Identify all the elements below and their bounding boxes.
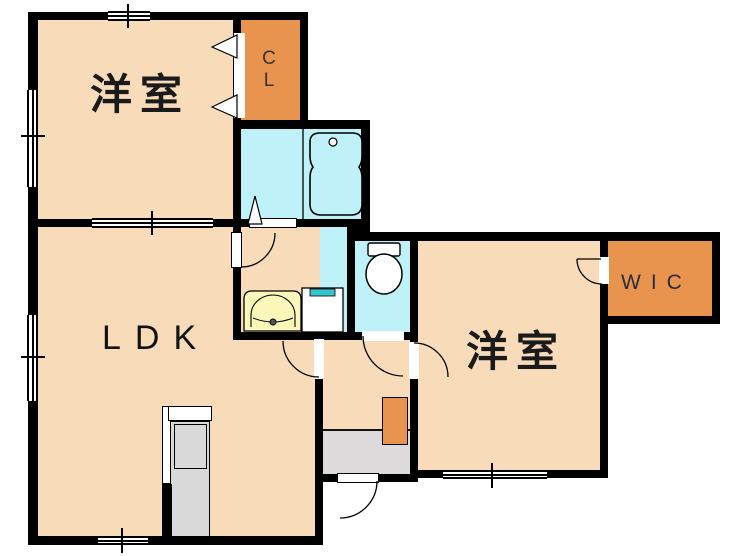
wall-top	[28, 12, 308, 20]
shoe-cabinet-icon	[382, 397, 408, 445]
label-walk-in-closet: WIC	[621, 272, 692, 293]
room-bedroom-top-left	[30, 14, 238, 224]
window-tick	[21, 356, 45, 358]
wall-wic-bottom	[600, 316, 720, 324]
floorplan-canvas: 洋室 CL LDK 洋室 WIC	[0, 0, 747, 556]
window-tick	[21, 135, 45, 137]
wall-wic-right	[712, 233, 720, 324]
wall-bottom-ldk	[28, 536, 323, 545]
door-gap-wic	[599, 257, 609, 284]
wall-bathroom-top	[233, 120, 370, 129]
wall-closet-right	[300, 12, 308, 129]
label-bedroom-right: 洋室	[466, 331, 566, 373]
door-leaf-washroom	[231, 232, 242, 268]
door-leaf-entrance	[337, 473, 379, 483]
door-gap-bedroom2	[409, 342, 419, 379]
window-tick	[121, 528, 123, 553]
window-bedroom1-top	[108, 11, 150, 21]
window-ldk-left	[27, 315, 38, 401]
door-gap-bathroom	[249, 218, 297, 228]
door-gap-toilet	[362, 331, 404, 341]
room-toilet	[350, 235, 414, 335]
window-bedroom1-left	[27, 90, 38, 187]
label-closet: CL	[261, 48, 277, 92]
door-gap-closet	[234, 33, 245, 118]
kitchen-counter-top	[168, 406, 212, 421]
room-bathroom	[236, 123, 366, 225]
window-tick	[491, 463, 493, 488]
window-tick	[127, 4, 129, 28]
label-bedroom-top-left: 洋室	[90, 74, 190, 116]
window-tick	[151, 211, 153, 235]
window-ldk-bottom	[98, 536, 148, 545]
door-swing-entrance	[340, 481, 377, 518]
wall-toilet-left	[347, 232, 355, 340]
door-gap-ldk-hall	[314, 339, 324, 379]
label-ldk: LDK	[102, 321, 210, 355]
window-bedroom2-bottom	[443, 470, 547, 479]
kitchen-wall-stub	[162, 484, 172, 540]
wall-right-section-top	[347, 232, 720, 241]
kitchen-sink-box	[174, 424, 207, 469]
